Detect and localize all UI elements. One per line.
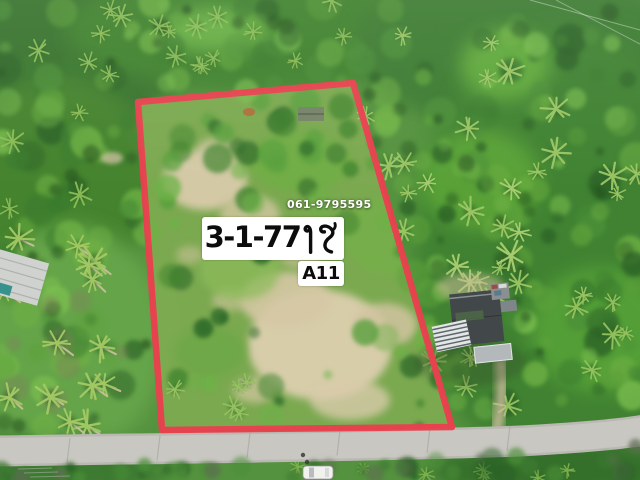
plot-code-badge: A11 — [298, 261, 344, 286]
area-label-box: 3-1-77 — [202, 217, 344, 260]
area-size-text: 3-1-77 — [205, 223, 301, 252]
aerial-photo: 061-9795595 3-1-77 A11 — [0, 0, 640, 480]
phone-number-overlay: 061-9795595 — [287, 198, 371, 211]
thai-rai-unit-text — [303, 221, 341, 257]
